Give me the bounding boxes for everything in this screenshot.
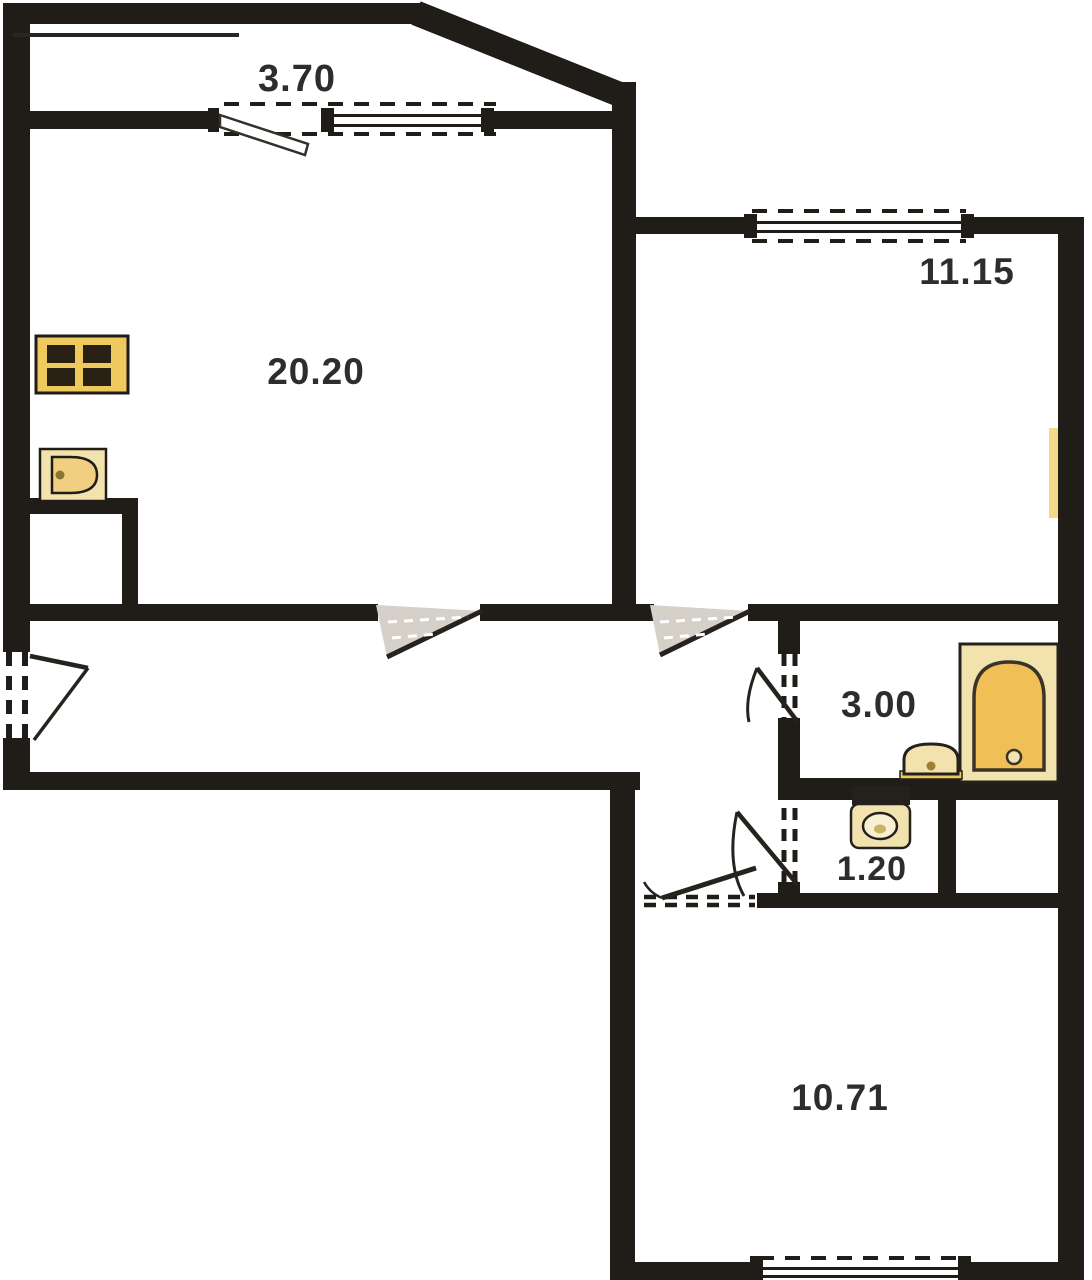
wall-wc-right [938,800,956,895]
wall-outer-diagonal [416,13,626,97]
door-swing [376,605,482,657]
window-jamb [321,108,334,132]
radiator-icon [1049,428,1058,518]
wall-bedroom2-bottom-left [610,1262,757,1280]
floor-plan-svg: 3.70 20.20 11.15 3.00 1.20 10.71 [0,0,1092,1280]
wall-hall-bottom [3,772,640,790]
toilet-tank [852,786,910,805]
toilet-bowl-dot [874,825,886,834]
walls [3,3,1084,1280]
stove-burner [47,345,75,363]
wall-bathroom-left-lower [778,718,800,780]
room-label-bedroom-bottom: 10.71 [791,1077,889,1118]
door-swing-arc [748,668,757,722]
room-label-balcony: 3.70 [258,58,336,100]
wall-divider-living-bedroom [612,82,636,621]
kitchen-sink-icon [40,449,106,501]
washbasin-drain [927,762,936,771]
stove-icon [36,336,128,393]
room-label-bathroom: 3.00 [841,684,917,725]
bedroom-bottom-window [750,1256,971,1280]
entrance-door [9,652,88,740]
toilet-icon [851,786,910,848]
window-jamb [481,108,494,132]
kitchen-sink-drain [56,471,65,480]
room-label-bedroom-top: 11.15 [919,251,1015,292]
room-label-living-room: 20.20 [267,351,365,392]
window-pane-line [757,1267,965,1270]
bathtub-drain [1007,750,1021,764]
bedroom-top-door [650,605,750,655]
living-room-door [376,605,482,657]
wall-outer-left-upper [3,3,30,652]
window-pane-line [750,221,968,224]
wall-bedroom-top-left [636,217,752,234]
wall-niche-vertical [122,498,138,621]
washbasin-icon [900,744,962,779]
wall-bathroom-left-upper [778,604,800,654]
window-jamb [961,214,974,238]
bedroom-top-window [744,211,974,241]
door-leaf-chord [34,668,88,740]
door-leaf [757,668,797,721]
wall-bedroom2-top [757,893,1058,908]
window-jamb [750,1256,763,1280]
wall-outer-right [1058,217,1084,1280]
window-jamb [744,214,757,238]
stove-burner [47,368,75,386]
window-pane-line [757,1275,965,1278]
wall-bedroom2-bottom-right [965,1262,1084,1280]
window-jamb [208,108,219,132]
wall-hall-top-b [480,604,654,621]
door-leaf [30,656,88,668]
wall-outer-top [3,3,424,24]
room-label-wc: 1.20 [837,850,907,888]
wall-corridor-left [610,772,635,1280]
fixtures [36,336,1058,848]
window-pane-line [750,230,968,233]
window-pane-line [332,124,486,127]
balcony-parapet-line [13,33,239,37]
floor-plan: 3.70 20.20 11.15 3.00 1.20 10.71 [0,0,1092,1280]
stove-burner [83,345,111,363]
wall-balcony-sill-left [13,111,212,129]
door-swing [650,605,750,655]
bathtub-icon [960,644,1058,782]
wall-hall-top-a [30,604,378,621]
bathroom-door [748,654,797,722]
door-swing-arc [733,812,744,896]
window-jamb [958,1256,971,1280]
window-pane-line [332,114,486,117]
stove-burner [83,368,111,386]
